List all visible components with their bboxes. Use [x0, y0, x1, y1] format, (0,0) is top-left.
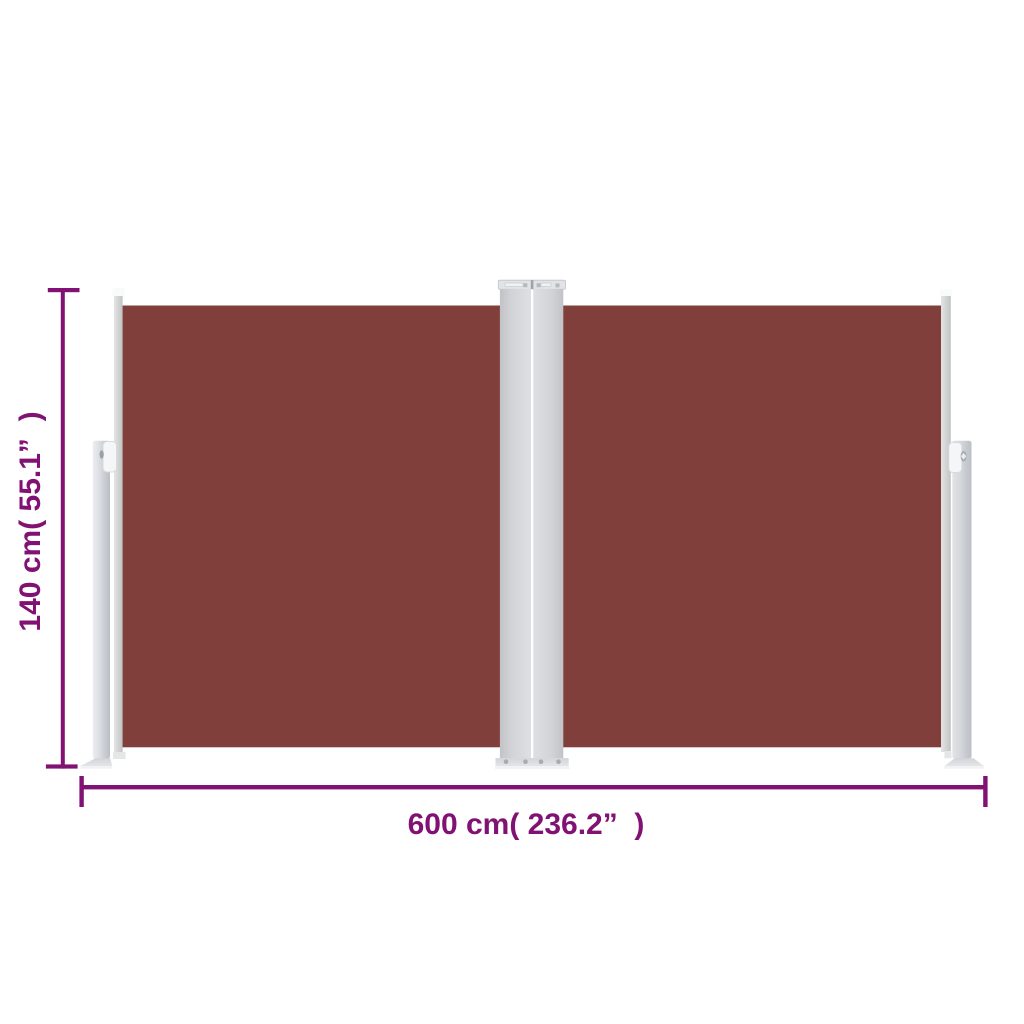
- svg-text:140 cm( 55.1” ): 140 cm( 55.1” ): [14, 411, 47, 631]
- svg-text:600 cm( 236.2” ): 600 cm( 236.2” ): [408, 808, 645, 841]
